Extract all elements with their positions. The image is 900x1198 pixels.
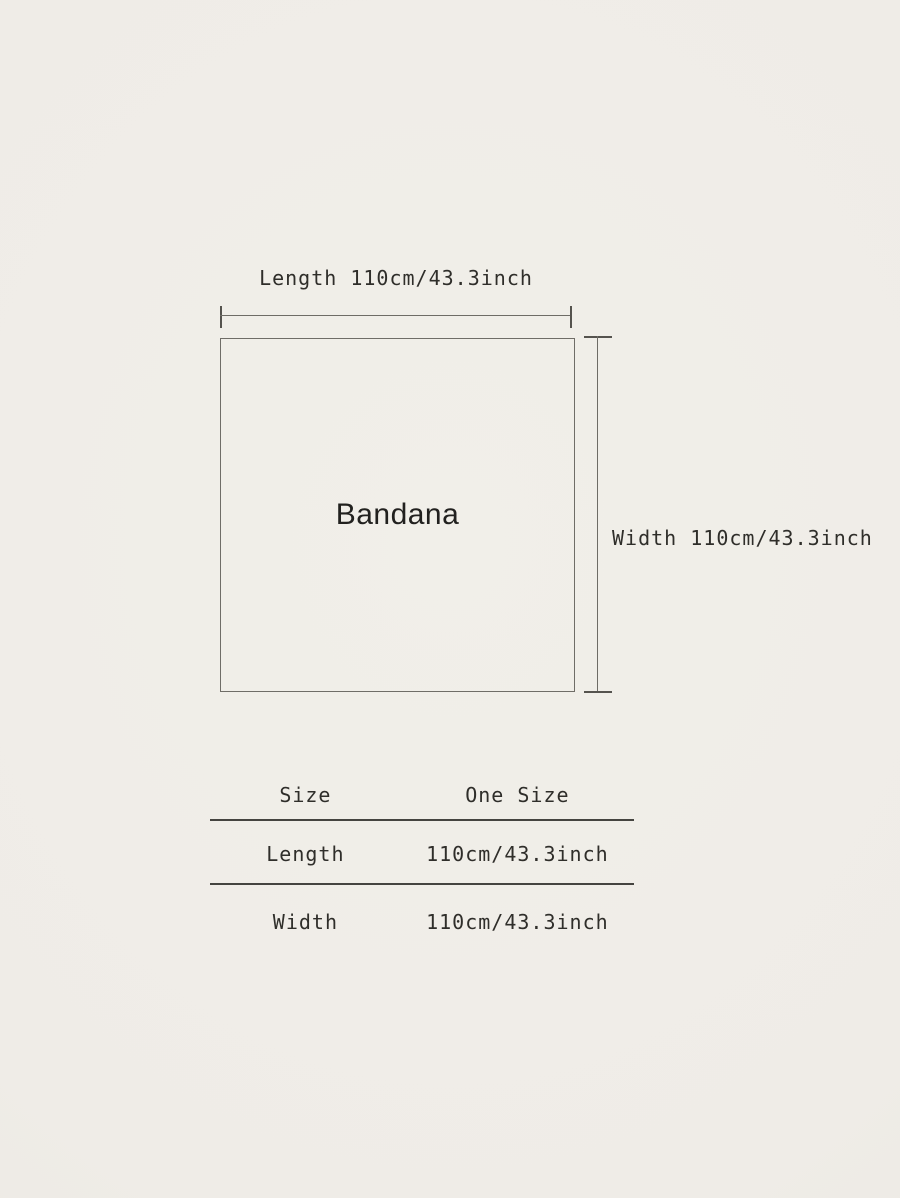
length-measure-line [220, 306, 572, 328]
table-row-length: Length 110cm/43.3inch [210, 821, 634, 883]
size-chart-page: Length 110cm/43.3inch Bandana Width 110c… [0, 0, 900, 1198]
measure-tick-right [570, 306, 572, 328]
shape-label: Bandana [336, 498, 460, 532]
table-cell-width-value: 110cm/43.3inch [401, 910, 634, 934]
width-dimension-label: Width 110cm/43.3inch [612, 526, 873, 550]
table-cell-length-label: Length [210, 842, 401, 866]
table-header-row: Size One Size [210, 770, 634, 819]
measure-hline [220, 315, 572, 316]
table-row-width: Width 110cm/43.3inch [210, 885, 634, 951]
measure-tick-left [220, 306, 222, 328]
table-header-size: Size [210, 783, 401, 807]
measure-cap-top [584, 336, 612, 338]
size-table: Size One Size Length 110cm/43.3inch Widt… [210, 770, 634, 951]
table-cell-length-value: 110cm/43.3inch [401, 842, 634, 866]
length-dimension-label: Length 110cm/43.3inch [220, 266, 572, 290]
table-header-one-size: One Size [401, 783, 634, 807]
width-measure-line [584, 336, 612, 693]
table-cell-width-label: Width [210, 910, 401, 934]
measure-vline [597, 336, 598, 693]
bandana-outline: Bandana [220, 338, 575, 692]
measure-cap-bottom [584, 691, 612, 693]
